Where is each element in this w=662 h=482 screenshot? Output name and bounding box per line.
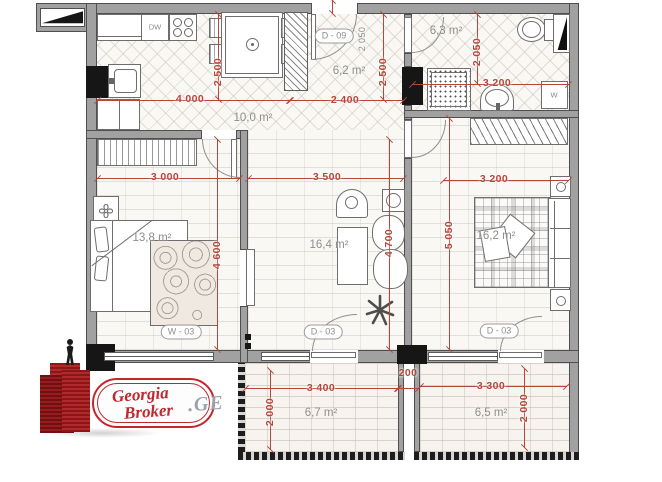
area-kitchen: 10,0 m² [234, 112, 273, 124]
wall-hall-bath-b [404, 53, 412, 67]
middle-balcony-door-leaf [311, 352, 356, 358]
kitchen-sink [108, 64, 141, 98]
balcony-left-bottom-edge [238, 452, 405, 460]
shower [427, 68, 471, 111]
cabinet-divider [119, 101, 120, 129]
stool [382, 189, 405, 212]
sofa-right [548, 198, 571, 288]
dim-bedroom-h: 4 600 [211, 241, 223, 269]
dim-balcony-right-w: 3 300 [477, 380, 505, 392]
dim-right-h: 5 050 [443, 221, 455, 249]
person-icon [64, 345, 76, 365]
area-balcony-left: 6,7 m² [305, 407, 338, 419]
right-balcony-door-leaf [499, 352, 542, 358]
wardrobe-bedroom [97, 139, 197, 166]
dim-kitchen-w: 4 000 [176, 93, 204, 105]
rug-bedroom [150, 240, 218, 326]
tag-right-balcony-door: D - 03 [480, 324, 519, 339]
right-window [428, 352, 498, 361]
plant-icon [364, 293, 396, 327]
dim-balcony-left-h: 2 000 [264, 398, 276, 426]
vent-shaft [553, 14, 570, 53]
sofa-cushion-line [550, 258, 570, 259]
area-bathroom: 6,3 m² [430, 25, 463, 37]
dim-balcony-gap: 200 [399, 367, 418, 379]
burner-icon [184, 18, 193, 27]
area-living-right: 16,2 m² [477, 230, 516, 242]
washing-machine-label: W [550, 91, 557, 100]
dining-table [221, 12, 283, 78]
wall-kitchen-bedroom-a [86, 130, 202, 139]
chair [209, 18, 222, 38]
dim-balcony-left-w: 3 400 [307, 382, 335, 394]
wardrobe-right [470, 118, 568, 145]
hall-cabinet [284, 12, 308, 91]
wall-socket [245, 343, 251, 349]
dim-middle-w: 3 500 [313, 171, 341, 183]
wall-top-right [357, 3, 579, 14]
toilet-bowl [522, 21, 541, 38]
wall-bedroom-middle-a [240, 130, 248, 250]
area-balcony-right: 6,5 m² [475, 407, 508, 419]
pocket-door-leaf [246, 249, 255, 306]
armchair-middle [336, 189, 368, 218]
logo-tld: .GE [187, 392, 224, 417]
dim-bedroom-w: 3 000 [151, 171, 179, 183]
person-icon [67, 339, 73, 345]
kitchen-cabinet [97, 99, 140, 130]
table-decor-dot [251, 43, 254, 46]
bathroom-door-leaf [404, 17, 412, 53]
dim-bath-h: 2 050 [471, 38, 483, 66]
column-balcony-gap [397, 345, 427, 364]
sofa-side-table-bottom [550, 289, 571, 311]
sofa-back-line [554, 201, 555, 287]
dim-balcony-right-h: 2 000 [518, 394, 530, 422]
dishwasher-label: DW [149, 23, 162, 32]
shower-tray [431, 72, 467, 107]
burner-icon [173, 28, 182, 37]
protrusion-niche [40, 8, 85, 27]
area-hallway: 6,2 m² [333, 65, 366, 77]
dim-hall-w: 2 400 [331, 94, 359, 106]
logo-word2: Broker [123, 400, 173, 423]
wall-bathroom-bottom [404, 110, 579, 118]
bath-faucet-icon [496, 103, 500, 110]
dim-right-w: 3 200 [480, 173, 508, 185]
dim-bath-w: 3 200 [483, 77, 511, 89]
sink-basin [114, 69, 137, 93]
flower-icon [99, 204, 113, 218]
sofa-cushion-line [550, 228, 570, 229]
dim-hall-h: 2 500 [377, 58, 389, 86]
right-room-door-leaf [404, 120, 412, 158]
dim-entry-side: 2 050 [357, 27, 367, 52]
burner-icon [173, 18, 182, 27]
bed-headboard-line [112, 221, 113, 311]
floor-plan: DW W [0, 0, 662, 482]
logo: Georgia Broker .GE [30, 335, 240, 445]
middle-window [261, 352, 310, 361]
balcony-right-bottom-edge [414, 452, 579, 460]
armchair-seat [345, 196, 358, 209]
vent-wedge-icon [556, 17, 567, 50]
column-kitchen [86, 66, 110, 98]
tag-middle-balcony-door: D - 03 [304, 325, 343, 340]
dim-middle-h: 4 700 [383, 229, 395, 257]
tag-entry-door: D - 09 [315, 29, 354, 44]
area-bedroom: 13,8 m² [133, 232, 172, 244]
area-living-middle: 16,4 m² [310, 239, 349, 251]
wall-socket [245, 334, 251, 340]
dim-kitchen-h: 2 500 [212, 58, 224, 86]
building-icon [62, 370, 90, 432]
desk-middle [337, 227, 368, 285]
stove [169, 14, 197, 41]
side-table-plant [556, 296, 566, 306]
pillow [94, 255, 110, 281]
toilet-icon [517, 17, 546, 42]
burner-icon [184, 28, 193, 37]
dim-line-entry-stub [332, 0, 333, 14]
vent-wedge-icon [42, 10, 83, 25]
faucet-icon [109, 78, 114, 84]
